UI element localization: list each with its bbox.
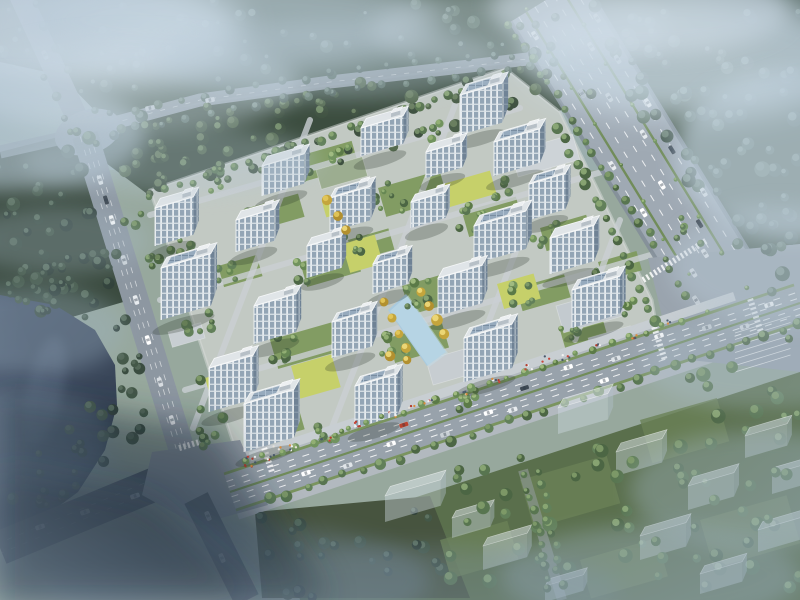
- rendering-canvas: [0, 0, 800, 600]
- layer-vignette: [0, 0, 800, 600]
- vignette: [0, 0, 800, 600]
- scene: [0, 0, 800, 600]
